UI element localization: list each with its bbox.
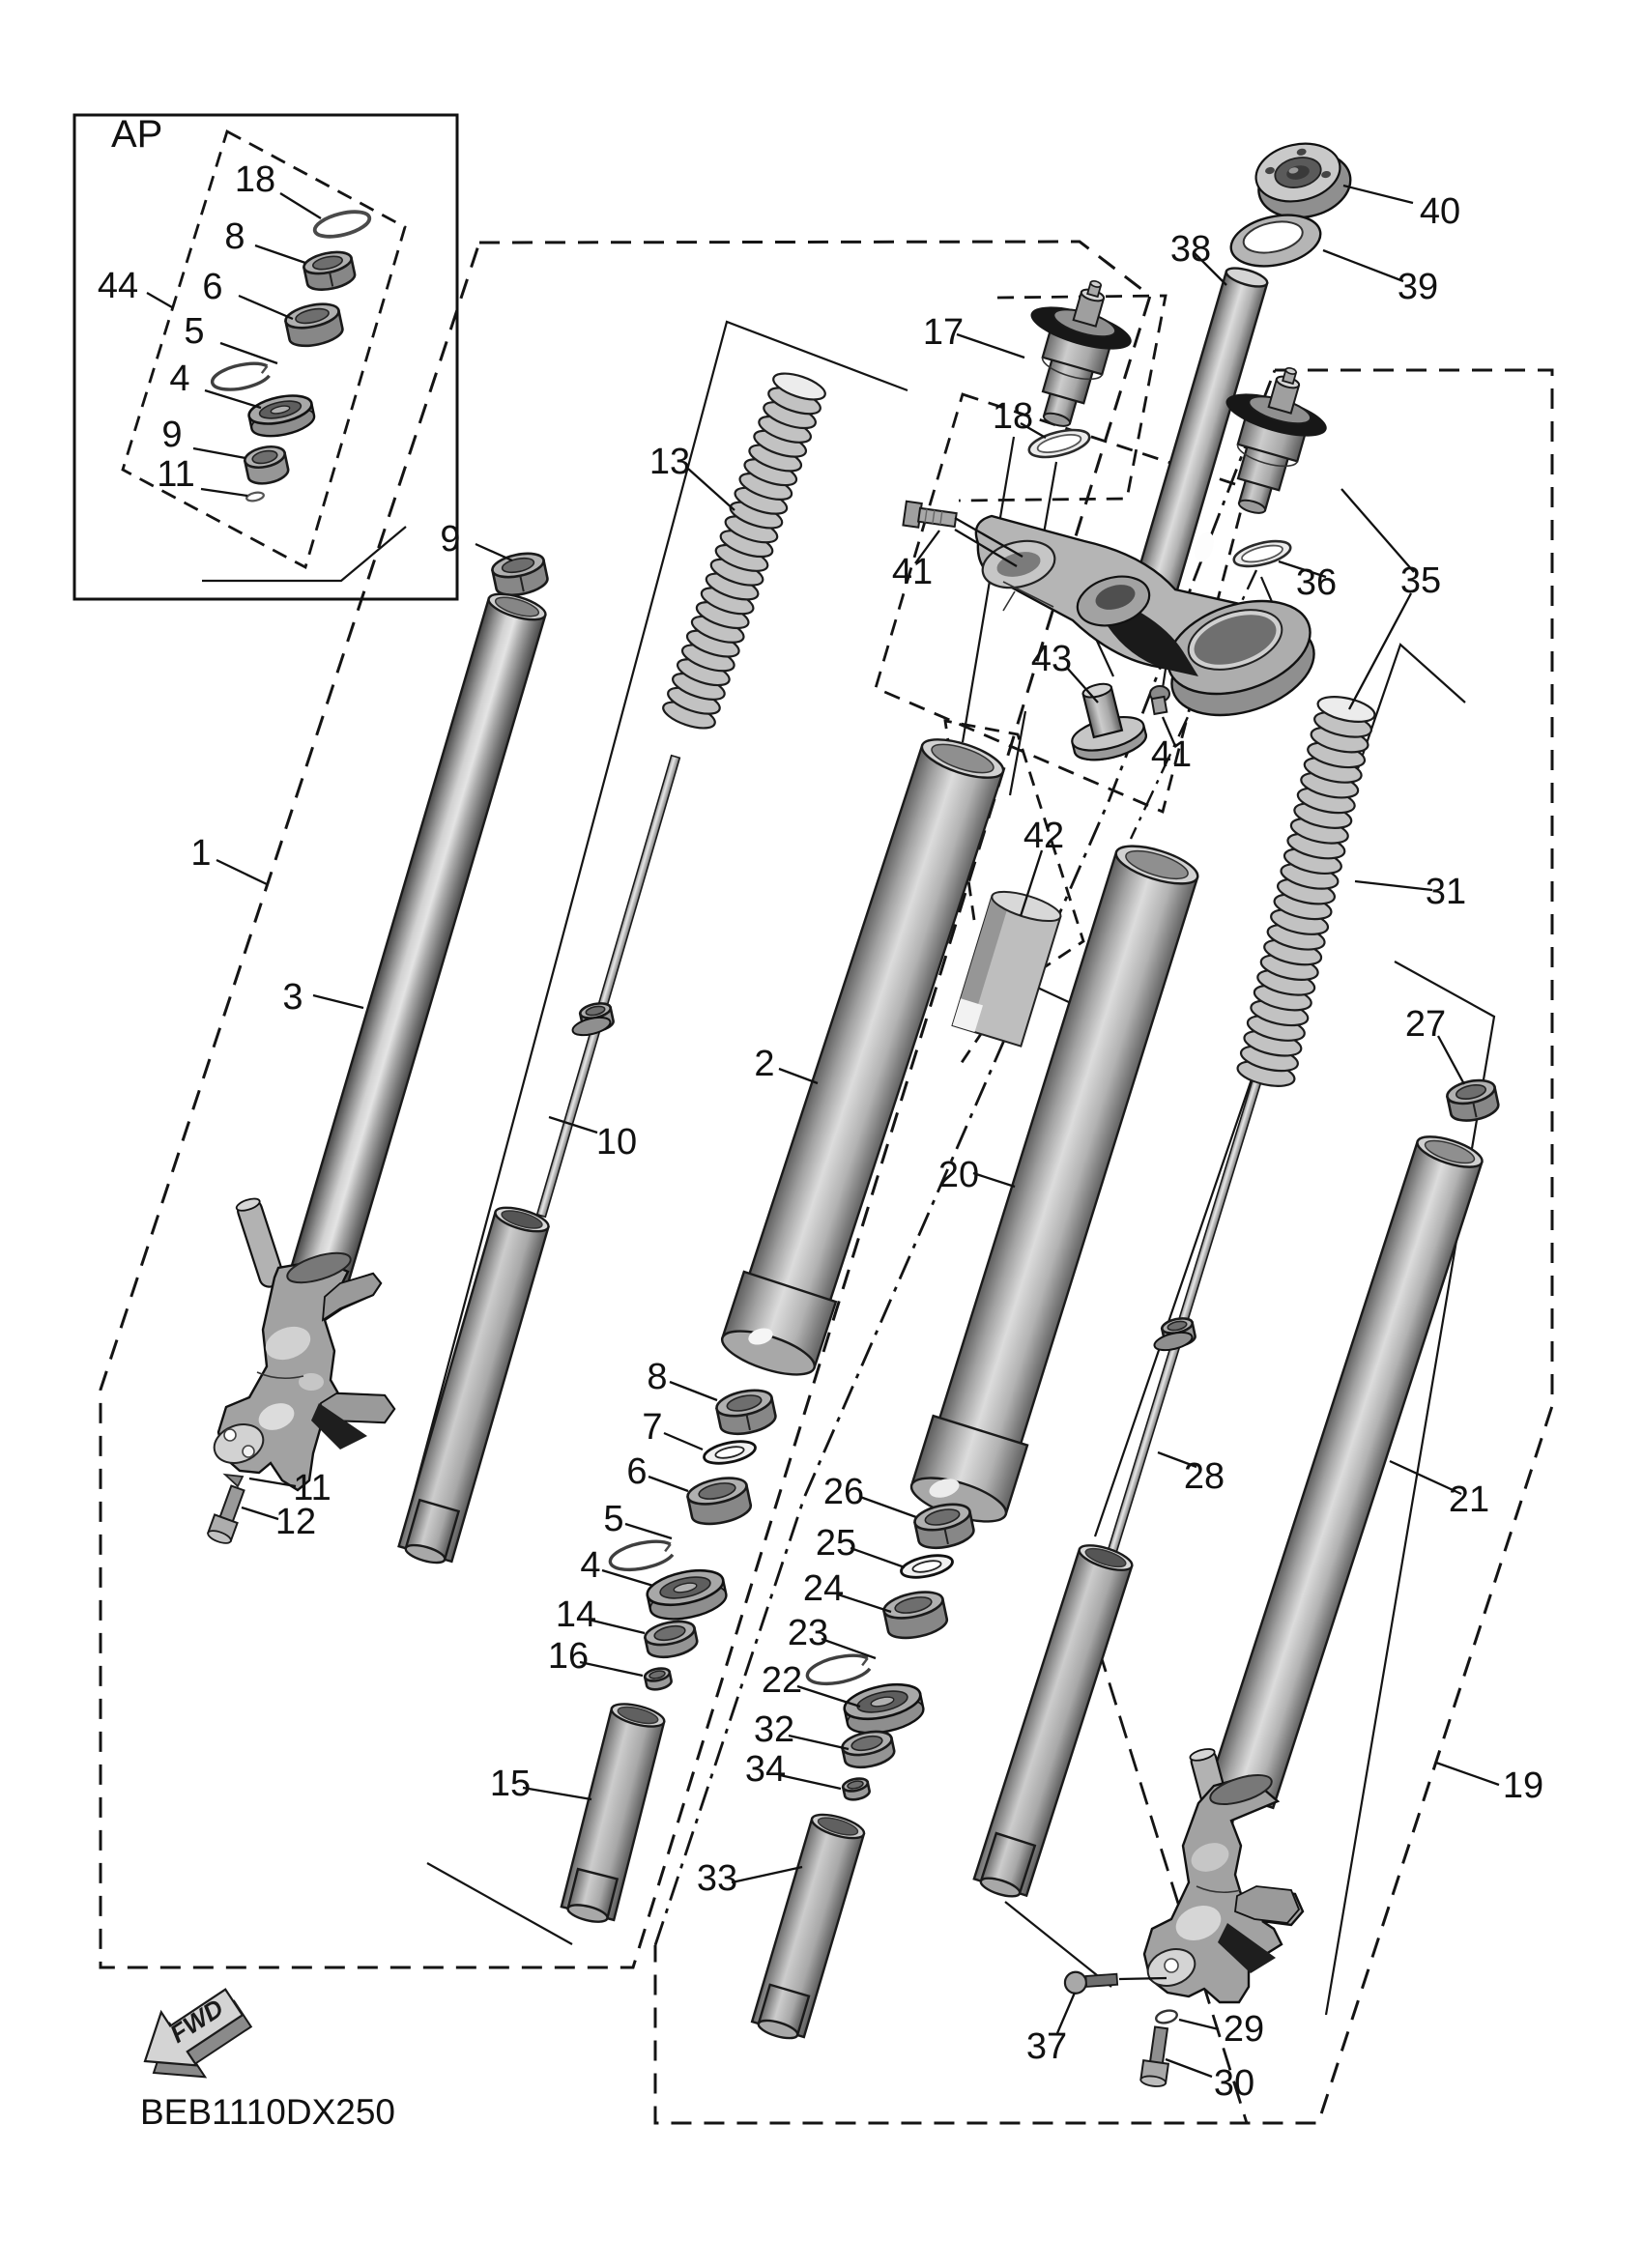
- svg-text:14: 14: [556, 1594, 596, 1635]
- svg-text:22: 22: [762, 1660, 802, 1701]
- svg-text:18: 18: [993, 396, 1033, 437]
- svg-text:40: 40: [1420, 191, 1460, 232]
- svg-text:19: 19: [1503, 1766, 1543, 1806]
- svg-text:42: 42: [1023, 816, 1064, 856]
- svg-text:39: 39: [1398, 267, 1438, 307]
- svg-text:26: 26: [823, 1472, 864, 1512]
- svg-text:20: 20: [938, 1155, 979, 1195]
- svg-text:34: 34: [745, 1749, 786, 1790]
- svg-text:8: 8: [224, 216, 245, 257]
- svg-text:31: 31: [1426, 872, 1466, 912]
- svg-text:43: 43: [1031, 639, 1072, 679]
- svg-text:16: 16: [548, 1636, 589, 1677]
- svg-text:44: 44: [98, 266, 138, 306]
- svg-text:12: 12: [275, 1502, 316, 1542]
- svg-text:3: 3: [282, 977, 303, 1018]
- svg-text:10: 10: [596, 1122, 637, 1163]
- svg-text:AP: AP: [111, 113, 162, 156]
- svg-text:9: 9: [161, 415, 182, 455]
- svg-text:29: 29: [1224, 2009, 1264, 2050]
- svg-text:21: 21: [1449, 1479, 1489, 1520]
- svg-text:35: 35: [1400, 560, 1441, 601]
- svg-text:6: 6: [202, 267, 222, 307]
- svg-text:32: 32: [754, 1709, 794, 1750]
- svg-text:11: 11: [157, 454, 194, 495]
- svg-text:37: 37: [1026, 2026, 1067, 2067]
- svg-text:17: 17: [923, 312, 964, 353]
- svg-text:41: 41: [892, 552, 933, 592]
- svg-text:BEB1110DX250: BEB1110DX250: [140, 2092, 395, 2132]
- svg-text:28: 28: [1184, 1456, 1225, 1497]
- svg-text:4: 4: [169, 359, 189, 399]
- svg-text:9: 9: [440, 519, 460, 560]
- svg-text:6: 6: [626, 1451, 647, 1492]
- svg-text:18: 18: [235, 159, 275, 200]
- svg-text:41: 41: [1151, 734, 1192, 775]
- svg-text:5: 5: [603, 1499, 623, 1539]
- svg-text:24: 24: [803, 1568, 844, 1609]
- svg-text:33: 33: [697, 1858, 737, 1899]
- svg-text:13: 13: [649, 442, 690, 482]
- svg-text:25: 25: [816, 1523, 856, 1564]
- svg-text:15: 15: [490, 1764, 531, 1804]
- svg-text:8: 8: [647, 1357, 667, 1397]
- svg-text:23: 23: [788, 1613, 828, 1653]
- svg-text:1: 1: [190, 833, 211, 874]
- svg-text:4: 4: [580, 1545, 600, 1586]
- svg-text:2: 2: [754, 1044, 774, 1084]
- svg-text:5: 5: [184, 311, 204, 352]
- svg-text:7: 7: [642, 1407, 662, 1448]
- svg-text:30: 30: [1214, 2063, 1254, 2104]
